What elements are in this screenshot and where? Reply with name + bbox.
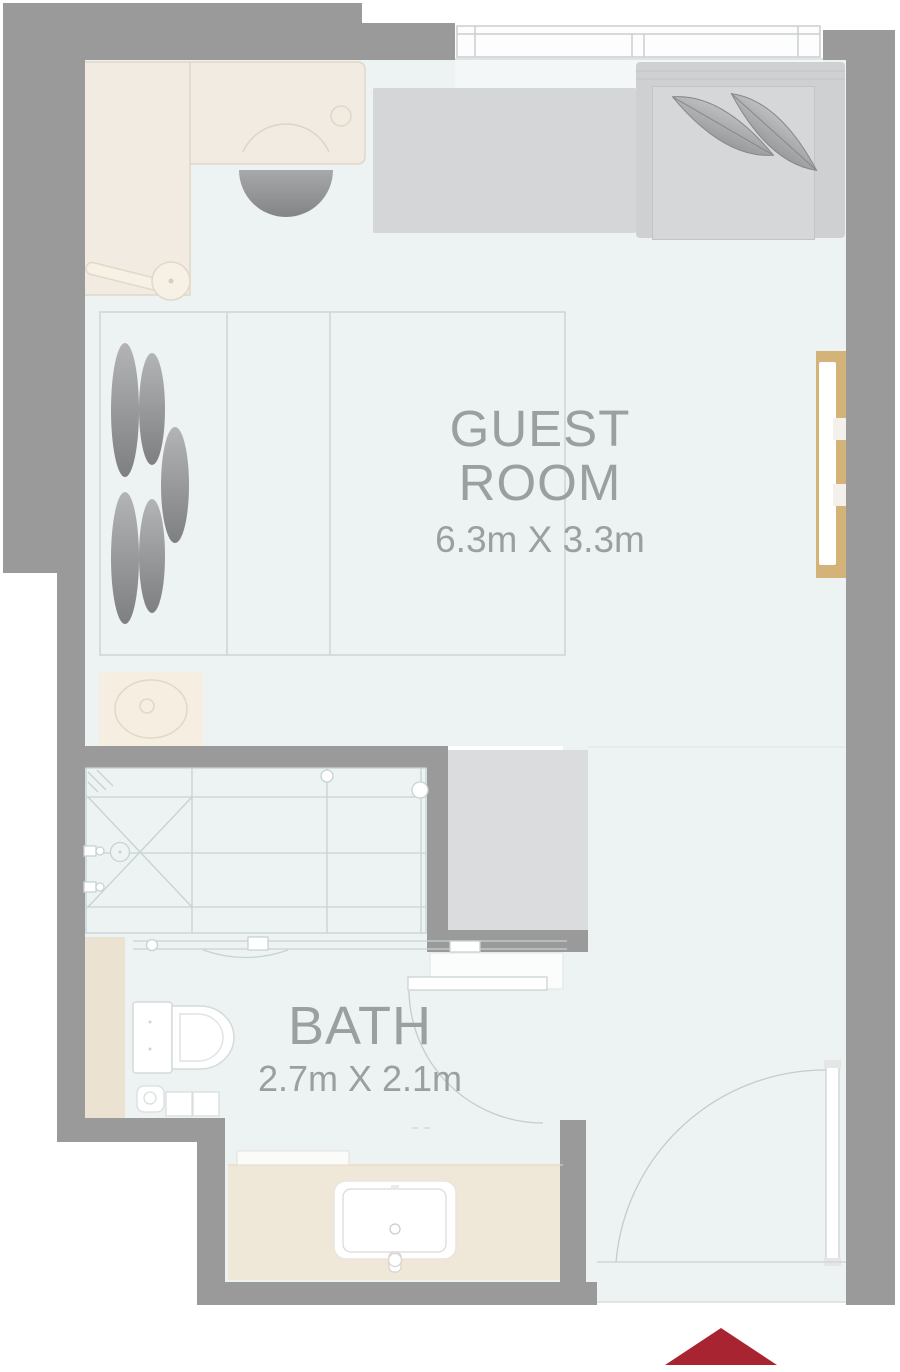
tv-panel-icon: [816, 351, 846, 578]
desk-icon: [85, 62, 365, 164]
wall-left-wide: [3, 23, 85, 573]
wall-bottom: [197, 1282, 597, 1305]
lounge-chair-seat: [652, 86, 815, 240]
wall-bottom-left-vertical: [197, 1142, 225, 1305]
wall-bath-right-lower: [560, 1120, 586, 1305]
daybed-icon: [373, 88, 636, 233]
wall-top-upper-step: [3, 3, 362, 23]
guest-room-dimensions: 6.3m X 3.3m: [405, 520, 675, 560]
desk-return-icon: [85, 164, 190, 295]
wall-bath-top: [57, 746, 437, 768]
bath-dimensions: 2.7m X 2.1m: [225, 1060, 495, 1098]
wall-bath-bottom-left: [57, 1118, 225, 1142]
wall-wardrobe-left: [427, 746, 448, 952]
floor-plan: GUEST ROOM 6.3m X 3.3m BATH 2.7m X 2.1m: [0, 0, 900, 1372]
ottoman-icon: [99, 672, 203, 747]
wall-right: [846, 30, 895, 1305]
vanity-counter-icon: [228, 1164, 563, 1280]
guest-room-name: GUEST ROOM: [405, 402, 675, 510]
entry-marker-triangle-icon: [665, 1328, 777, 1365]
guest-room-label: GUEST ROOM 6.3m X 3.3m: [405, 402, 675, 560]
bath-label: BATH 2.7m X 2.1m: [225, 998, 495, 1098]
wardrobe-icon: [448, 750, 588, 930]
window-icon: [455, 25, 823, 60]
wall-left-narrow: [57, 573, 85, 1142]
bath-name: BATH: [225, 998, 495, 1054]
entry-corridor-floor: [563, 746, 846, 1303]
bath-ledge: [85, 937, 125, 1118]
wall-wardrobe-bottom: [427, 930, 588, 952]
